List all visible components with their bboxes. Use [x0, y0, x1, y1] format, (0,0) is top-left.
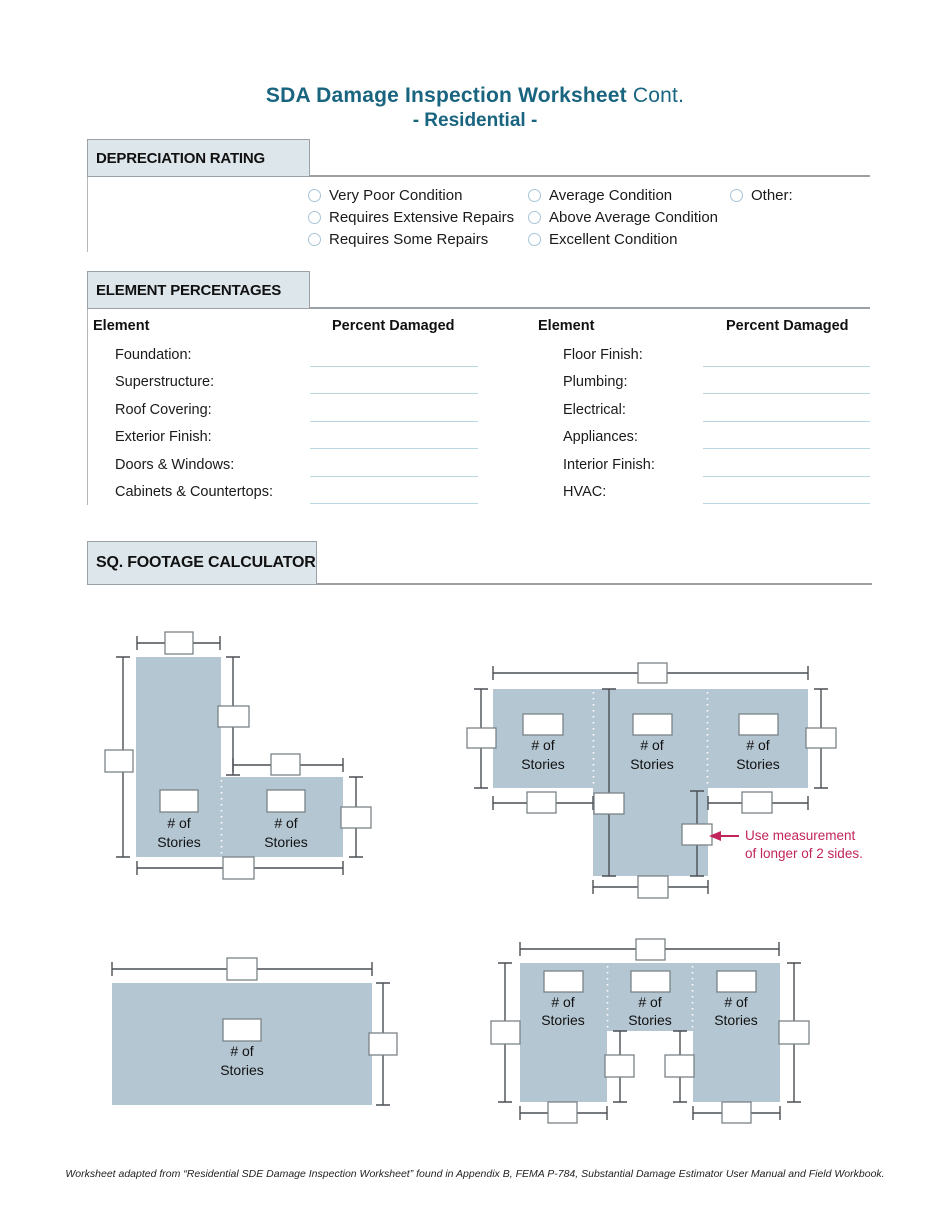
- stories-input-box[interactable]: [160, 790, 198, 812]
- percent-damaged-field-roof-covering[interactable]: [310, 398, 478, 422]
- dimension-input-box[interactable]: [682, 824, 712, 845]
- dimension-input-box[interactable]: [271, 754, 300, 775]
- stories-input-box[interactable]: [523, 714, 563, 735]
- dimension-input-box[interactable]: [605, 1055, 634, 1077]
- element-row-plumbing: Plumbing:: [563, 370, 870, 397]
- column-header-element-left: Element: [93, 318, 149, 334]
- section-label: SQ. FOOTAGE CALCULATOR: [96, 554, 316, 572]
- element-label: Floor Finish:: [563, 343, 703, 363]
- element-row-cabinets-countertops: Cabinets & Countertops:: [115, 480, 478, 507]
- radio-label: Average Condition: [549, 187, 672, 204]
- radio-button-very-poor-condition[interactable]: [308, 189, 321, 202]
- stories-label: Stories: [541, 1012, 585, 1028]
- radio-button-average-condition[interactable]: [528, 189, 541, 202]
- element-row-interior-finish: Interior Finish:: [563, 453, 870, 480]
- radio-label: Above Average Condition: [549, 209, 718, 226]
- element-label: Superstructure:: [115, 370, 310, 390]
- stories-label: Stories: [157, 834, 201, 850]
- dimension-input-box[interactable]: [491, 1021, 520, 1044]
- percent-damaged-field-appliances[interactable]: [703, 425, 870, 449]
- dimension-input-box[interactable]: [665, 1055, 694, 1077]
- depreciation-options-col3: Other:: [730, 184, 793, 206]
- section-label: ELEMENT PERCENTAGES: [96, 282, 281, 299]
- element-row-hvac: HVAC:: [563, 480, 870, 507]
- radio-button-above-average-condition[interactable]: [528, 211, 541, 224]
- radio-option-other: Other:: [730, 184, 793, 206]
- element-label: Foundation:: [115, 343, 310, 363]
- title-cont: Cont.: [633, 84, 684, 107]
- stories-label: Stories: [521, 756, 565, 772]
- radio-label: Other:: [751, 187, 793, 204]
- stories-label: # of: [724, 994, 747, 1010]
- stories-input-box[interactable]: [739, 714, 778, 735]
- element-row-roof-covering: Roof Covering:: [115, 398, 478, 425]
- radio-button-excellent-condition[interactable]: [528, 233, 541, 246]
- dimension-input-box[interactable]: [369, 1033, 397, 1055]
- stories-input-box[interactable]: [223, 1019, 261, 1041]
- dimension-input-box[interactable]: [779, 1021, 809, 1044]
- stories-input-box[interactable]: [267, 790, 305, 812]
- radio-option-average: Average Condition: [528, 184, 718, 206]
- dimension-input-box[interactable]: [341, 807, 371, 828]
- stories-label: # of: [531, 737, 554, 753]
- percent-damaged-field-doors-windows[interactable]: [310, 453, 478, 477]
- dimension-input-box[interactable]: [105, 750, 133, 772]
- radio-button-requires-some-repairs[interactable]: [308, 233, 321, 246]
- column-header-percent-right: Percent Damaged: [726, 318, 849, 334]
- depreciation-options-col2: Average Condition Above Average Conditio…: [528, 184, 718, 250]
- dimension-input-box[interactable]: [165, 632, 193, 654]
- measurement-note-line2: of longer of 2 sides.: [745, 846, 863, 861]
- radio-option-very-poor: Very Poor Condition: [308, 184, 514, 206]
- element-label: Interior Finish:: [563, 453, 703, 473]
- section-label: DEPRECIATION RATING: [96, 150, 265, 167]
- percent-damaged-field-hvac[interactable]: [703, 480, 870, 504]
- percent-damaged-field-foundation[interactable]: [310, 343, 478, 367]
- stories-label: # of: [167, 815, 190, 831]
- element-label: Roof Covering:: [115, 398, 310, 418]
- diagram-rectangular-building: # of Stories: [95, 955, 415, 1115]
- element-row-appliances: Appliances:: [563, 425, 870, 452]
- element-row-floor-finish: Floor Finish:: [563, 343, 870, 370]
- radio-label: Very Poor Condition: [329, 187, 462, 204]
- stories-label: Stories: [628, 1012, 672, 1028]
- depreciation-options-col1: Very Poor Condition Requires Extensive R…: [308, 184, 514, 250]
- stories-label: # of: [551, 994, 574, 1010]
- dimension-input-box[interactable]: [638, 876, 668, 898]
- column-header-percent-left: Percent Damaged: [332, 318, 455, 334]
- diagram-t-shaped-building: Use measurement of longer of 2 sides. # …: [455, 658, 875, 908]
- dimension-input-box[interactable]: [548, 1102, 577, 1123]
- radio-label: Excellent Condition: [549, 231, 677, 248]
- dimension-input-box[interactable]: [594, 793, 624, 814]
- element-label: Appliances:: [563, 425, 703, 445]
- element-row-foundation: Foundation:: [115, 343, 478, 370]
- percent-damaged-field-exterior-finish[interactable]: [310, 425, 478, 449]
- radio-option-above-average: Above Average Condition: [528, 206, 718, 228]
- section-tab-depreciation-rating: DEPRECIATION RATING: [87, 139, 310, 177]
- element-label: Plumbing:: [563, 370, 703, 390]
- element-percentages-right-column: Floor Finish: Plumbing: Electrical: Appl…: [563, 343, 870, 507]
- dimension-input-box[interactable]: [223, 857, 254, 879]
- stories-label: Stories: [714, 1012, 758, 1028]
- stories-input-box[interactable]: [544, 971, 583, 992]
- dimension-input-box[interactable]: [722, 1102, 751, 1123]
- worksheet-page: SDA Damage Inspection Worksheet Cont. - …: [0, 0, 950, 1230]
- dimension-input-box[interactable]: [467, 728, 496, 748]
- diagram-l-shaped-building: # of Stories # of Stories: [95, 625, 390, 890]
- radio-label: Requires Some Repairs: [329, 231, 488, 248]
- dimension-input-box[interactable]: [638, 663, 667, 683]
- stories-label: Stories: [630, 756, 674, 772]
- element-label: Electrical:: [563, 398, 703, 418]
- dimension-input-box[interactable]: [218, 706, 249, 727]
- footer-attribution: Worksheet adapted from “Residential SDE …: [0, 1168, 950, 1180]
- measurement-note-line1: Use measurement: [745, 828, 856, 843]
- stories-label: Stories: [736, 756, 780, 772]
- element-label: HVAC:: [563, 480, 703, 500]
- dimension-input-box[interactable]: [742, 792, 772, 813]
- element-percentages-left-column: Foundation: Superstructure: Roof Coverin…: [115, 343, 478, 507]
- stories-label: # of: [640, 737, 663, 753]
- radio-label: Requires Extensive Repairs: [329, 209, 514, 226]
- title-main: SDA Damage Inspection Worksheet: [266, 84, 627, 107]
- stories-label: Stories: [220, 1062, 264, 1078]
- percent-damaged-field-superstructure[interactable]: [310, 370, 478, 394]
- percent-damaged-field-plumbing[interactable]: [703, 370, 870, 394]
- element-row-doors-windows: Doors & Windows:: [115, 453, 478, 480]
- page-title: SDA Damage Inspection Worksheet Cont. - …: [0, 84, 950, 132]
- stories-input-box[interactable]: [633, 714, 672, 735]
- percent-damaged-field-interior-finish[interactable]: [703, 453, 870, 477]
- stories-label: # of: [638, 994, 661, 1010]
- radio-button-other[interactable]: [730, 189, 743, 202]
- element-row-electrical: Electrical:: [563, 398, 870, 425]
- sq-footage-diagrams: # of Stories # of Stories: [0, 585, 950, 1145]
- percent-damaged-field-cabinets-countertops[interactable]: [310, 480, 478, 504]
- element-label: Doors & Windows:: [115, 453, 310, 473]
- element-label: Exterior Finish:: [115, 425, 310, 445]
- section-left-border: [87, 309, 88, 505]
- stories-label: # of: [274, 815, 297, 831]
- stories-label: # of: [746, 737, 769, 753]
- diagram-u-shaped-building: # of Stories # of Stories # of Stories: [475, 935, 825, 1135]
- section-left-border: [87, 177, 88, 252]
- section-tab-sq-footage-calculator: SQ. FOOTAGE CALCULATOR: [87, 541, 317, 585]
- section-tab-element-percentages: ELEMENT PERCENTAGES: [87, 271, 310, 309]
- column-header-element-right: Element: [538, 318, 594, 334]
- stories-input-box[interactable]: [717, 971, 756, 992]
- percent-damaged-field-electrical[interactable]: [703, 398, 870, 422]
- radio-option-some-repairs: Requires Some Repairs: [308, 228, 514, 250]
- title-subtitle: - Residential -: [0, 110, 950, 132]
- dimension-input-box[interactable]: [527, 792, 556, 813]
- element-row-exterior-finish: Exterior Finish:: [115, 425, 478, 452]
- stories-label: Stories: [264, 834, 308, 850]
- dimension-input-box[interactable]: [227, 958, 257, 980]
- percent-damaged-field-floor-finish[interactable]: [703, 343, 870, 367]
- stories-input-box[interactable]: [631, 971, 670, 992]
- dimension-input-box[interactable]: [636, 939, 665, 960]
- element-label: Cabinets & Countertops:: [115, 480, 310, 500]
- radio-option-excellent: Excellent Condition: [528, 228, 718, 250]
- radio-option-extensive-repairs: Requires Extensive Repairs: [308, 206, 514, 228]
- radio-button-requires-extensive-repairs[interactable]: [308, 211, 321, 224]
- stories-label: # of: [230, 1043, 253, 1059]
- dimension-input-box[interactable]: [806, 728, 836, 748]
- element-row-superstructure: Superstructure:: [115, 370, 478, 397]
